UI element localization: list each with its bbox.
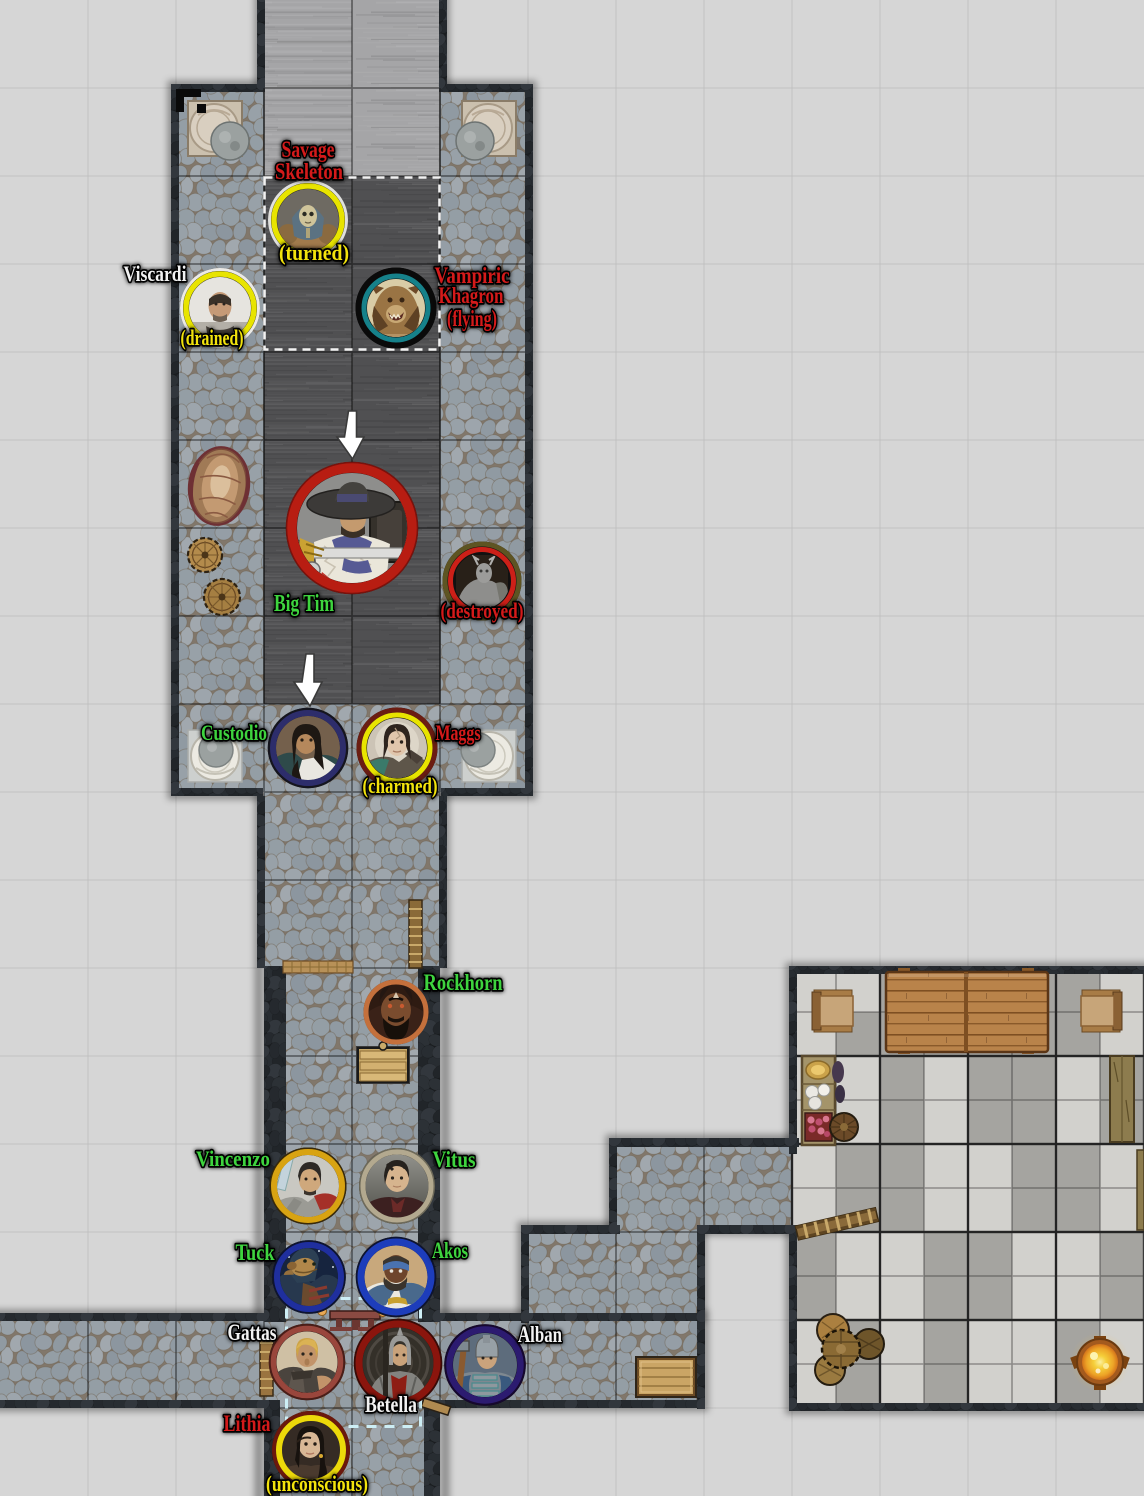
svg-text:Rockhorn: Rockhorn	[424, 970, 503, 995]
svg-text:(flying): (flying)	[447, 306, 497, 331]
svg-text:(drained): (drained)	[181, 325, 244, 350]
svg-text:Gattas: Gattas	[228, 1320, 277, 1345]
svg-text:Vincenzo: Vincenzo	[196, 1146, 270, 1171]
svg-text:Tuck: Tuck	[236, 1240, 275, 1265]
svg-text:Lithia: Lithia	[224, 1411, 271, 1436]
svg-text:Custodio: Custodio	[201, 720, 267, 745]
svg-text:(turned): (turned)	[279, 240, 349, 265]
svg-text:Vitus: Vitus	[433, 1147, 476, 1172]
svg-text:(charmed): (charmed)	[363, 773, 438, 798]
svg-text:Big Tim: Big Tim	[274, 591, 334, 617]
svg-text:Alban: Alban	[518, 1322, 562, 1347]
svg-text:(unconscious): (unconscious)	[266, 1471, 368, 1496]
svg-text:Viscardi: Viscardi	[124, 261, 187, 286]
svg-text:(destroyed): (destroyed)	[441, 598, 524, 623]
svg-text:Skeleton: Skeleton	[275, 159, 343, 184]
svg-text:Maggs: Maggs	[436, 720, 481, 745]
svg-text:Khagron: Khagron	[439, 283, 504, 308]
svg-text:Betella: Betella	[365, 1392, 417, 1417]
svg-text:Akos: Akos	[432, 1238, 468, 1263]
